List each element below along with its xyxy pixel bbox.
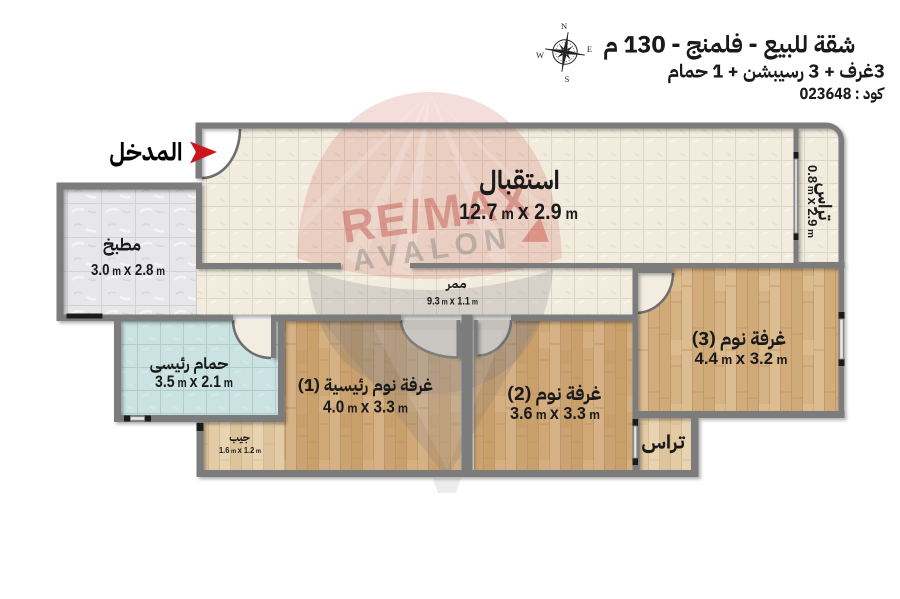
- svg-text:0.8 m x 2.9 m: 0.8 m x 2.9 m: [805, 165, 819, 238]
- svg-text:S: S: [565, 74, 570, 84]
- svg-text:W: W: [536, 50, 544, 60]
- svg-text:9.3 m x 1.1 m: 9.3 m x 1.1 m: [427, 296, 478, 308]
- svg-text:12.7 m x 2.9 m: 12.7 m x 2.9 m: [459, 199, 578, 224]
- svg-text:E: E: [587, 44, 592, 54]
- svg-text:N: N: [561, 21, 567, 31]
